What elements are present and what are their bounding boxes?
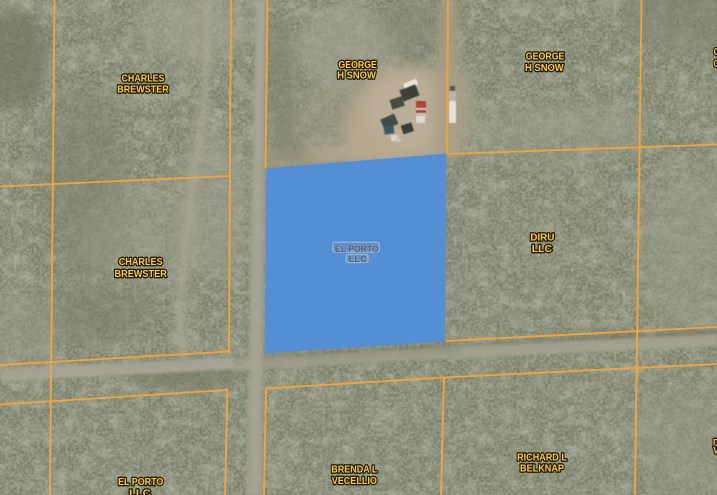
svg-text:BREWSTER: BREWSTER bbox=[117, 84, 169, 96]
svg-text:GE: GE bbox=[714, 46, 717, 58]
svg-text:BRENDA L: BRENDA L bbox=[331, 464, 378, 476]
svg-text:BREWSTER: BREWSTER bbox=[115, 268, 168, 280]
svg-text:DIRU: DIRU bbox=[530, 232, 554, 244]
svg-text:VE: VE bbox=[713, 445, 717, 457]
svg-text:BELKNAP: BELKNAP bbox=[520, 463, 564, 475]
svg-text:LLC: LLC bbox=[349, 254, 368, 265]
svg-text:OW: OW bbox=[714, 58, 717, 70]
svg-text:H SNOW: H SNOW bbox=[337, 69, 376, 81]
svg-text:LLC: LLC bbox=[532, 243, 553, 255]
svg-text:GEORGE: GEORGE bbox=[526, 50, 565, 62]
svg-text:CHARLES: CHARLES bbox=[122, 72, 165, 84]
svg-text:EL PORTO: EL PORTO bbox=[118, 476, 163, 488]
svg-text:LLC: LLC bbox=[129, 487, 151, 495]
svg-text:CHARLES: CHARLES bbox=[119, 256, 163, 268]
svg-text:VECELLIO: VECELLIO bbox=[332, 475, 377, 487]
svg-text:H SNOW: H SNOW bbox=[525, 62, 564, 74]
